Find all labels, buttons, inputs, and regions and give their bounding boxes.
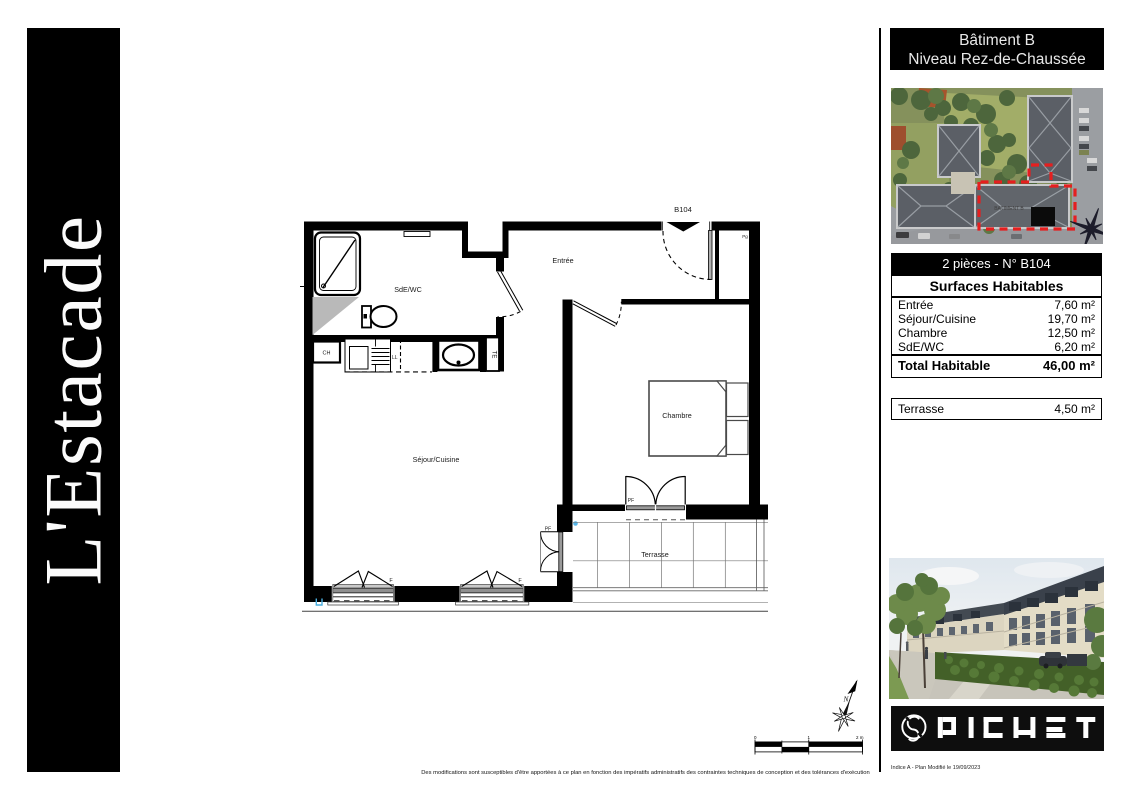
svg-text:CH: CH	[323, 351, 331, 357]
svg-text:PF: PF	[628, 498, 634, 504]
svg-text:Terrasse: Terrasse	[641, 550, 669, 559]
svg-text:LL: LL	[392, 355, 398, 361]
svg-text:Séjour/Cuisine: Séjour/Cuisine	[413, 455, 460, 464]
svg-text:B104: B104	[674, 205, 692, 214]
svg-text:F: F	[518, 578, 522, 584]
svg-text:Entrée: Entrée	[552, 256, 573, 265]
svg-text:PF: PF	[545, 527, 551, 533]
svg-text:0: 0	[754, 735, 757, 740]
svg-text:F: F	[389, 578, 393, 584]
svg-text:2 m: 2 m	[856, 735, 864, 740]
svg-text:SdE/WC: SdE/WC	[394, 285, 422, 294]
svg-text:Chambre: Chambre	[662, 411, 692, 420]
svg-text:Pg: Pg	[742, 234, 748, 239]
svg-text:N: N	[843, 695, 850, 704]
svg-text:TE: TE	[491, 351, 497, 359]
svg-text:1: 1	[808, 735, 811, 740]
